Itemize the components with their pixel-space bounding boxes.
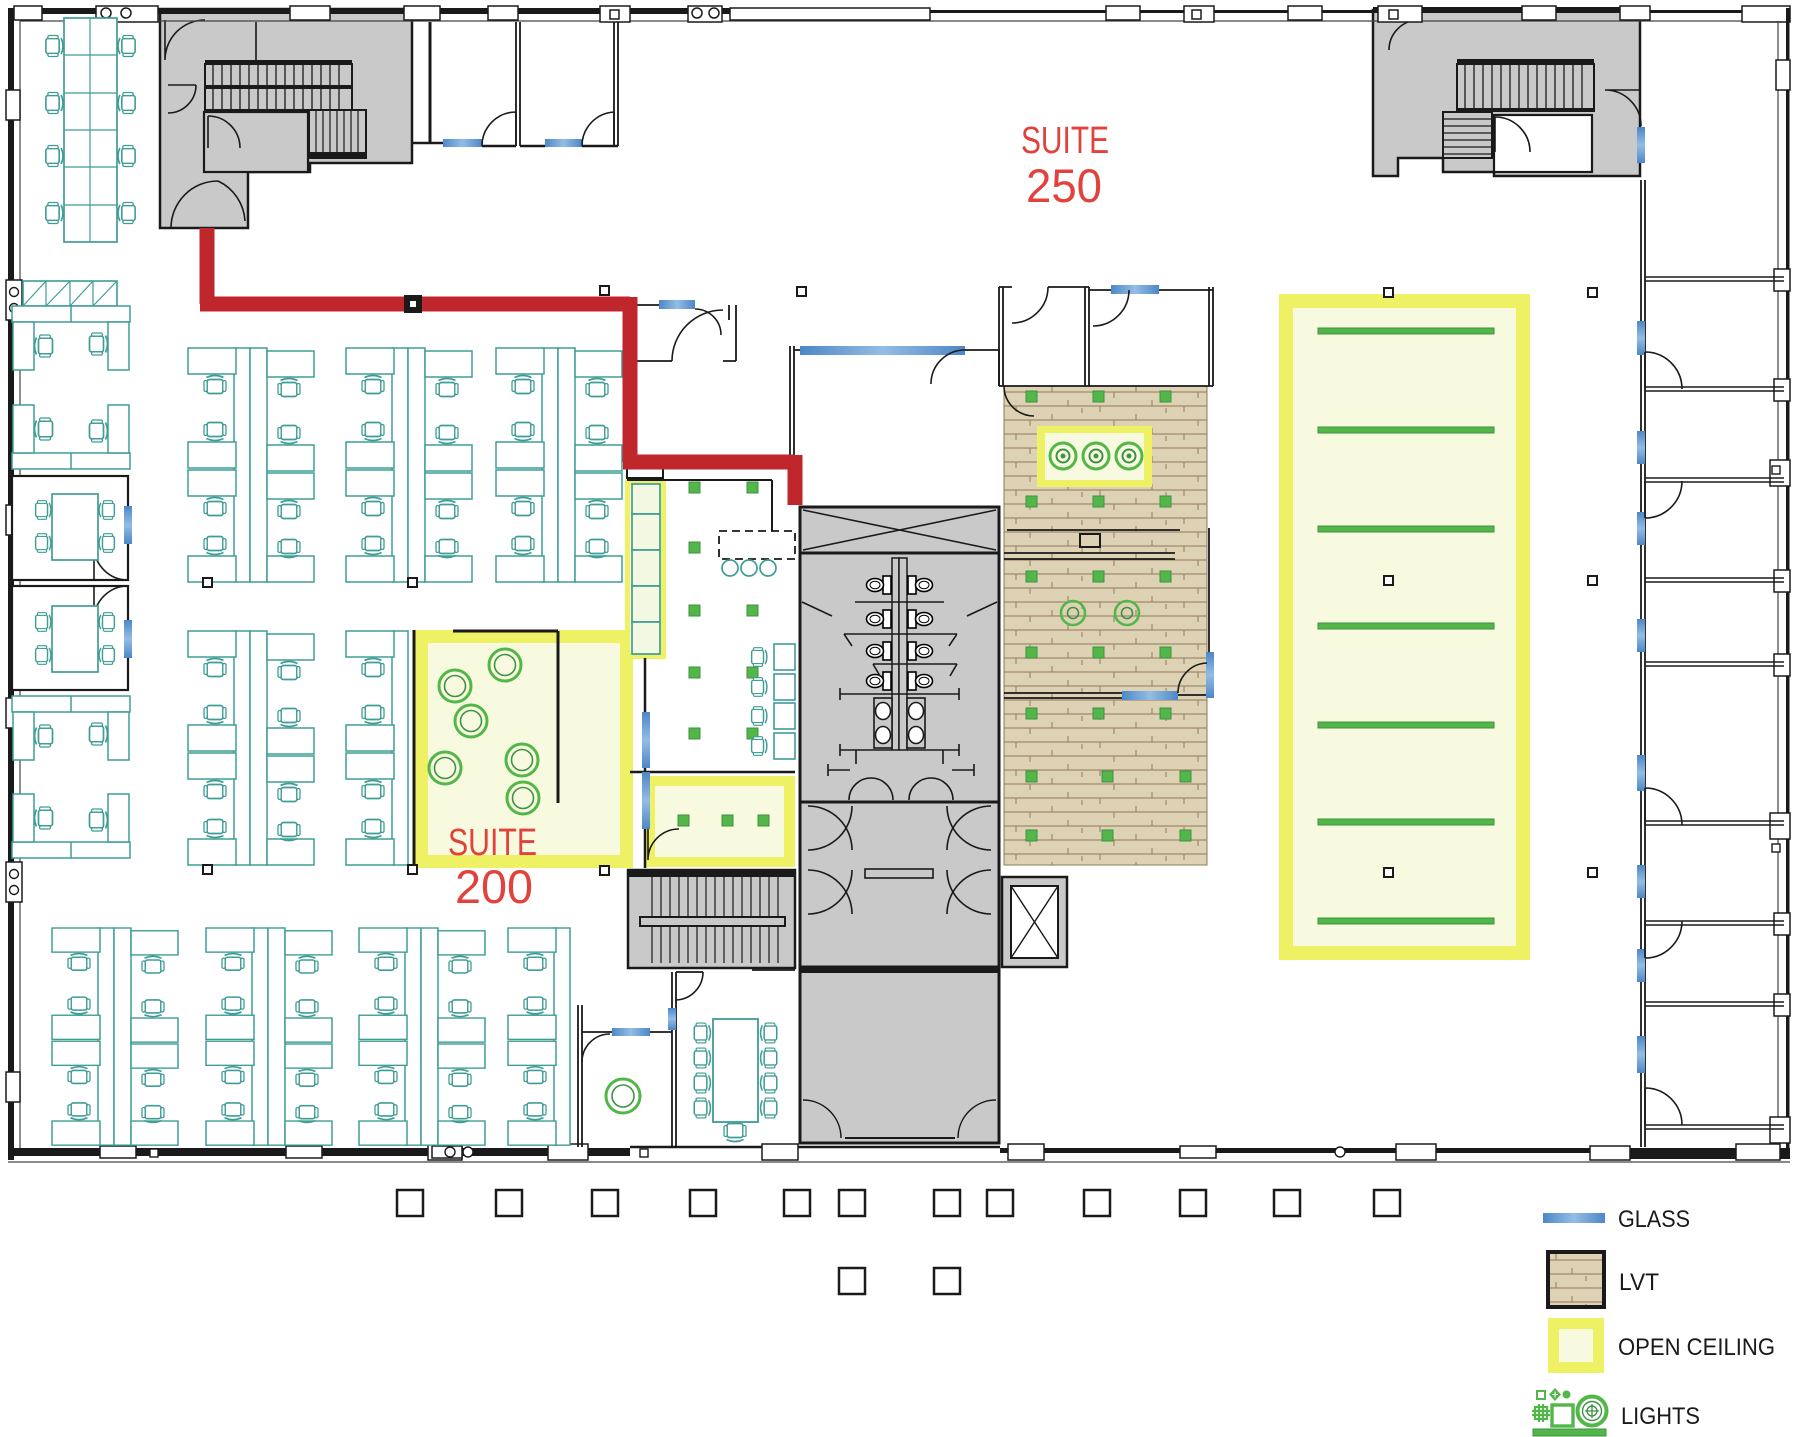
svg-text:GLASS: GLASS (1618, 1206, 1690, 1233)
svg-text:250: 250 (1026, 159, 1102, 212)
svg-text:SUITE: SUITE (1021, 120, 1109, 162)
svg-text:LIGHTS: LIGHTS (1621, 1403, 1700, 1430)
svg-text:200: 200 (455, 860, 533, 913)
svg-text:OPEN CEILING: OPEN CEILING (1618, 1334, 1775, 1361)
svg-text:LVT: LVT (1619, 1269, 1659, 1296)
svg-text:SUITE: SUITE (448, 822, 537, 864)
